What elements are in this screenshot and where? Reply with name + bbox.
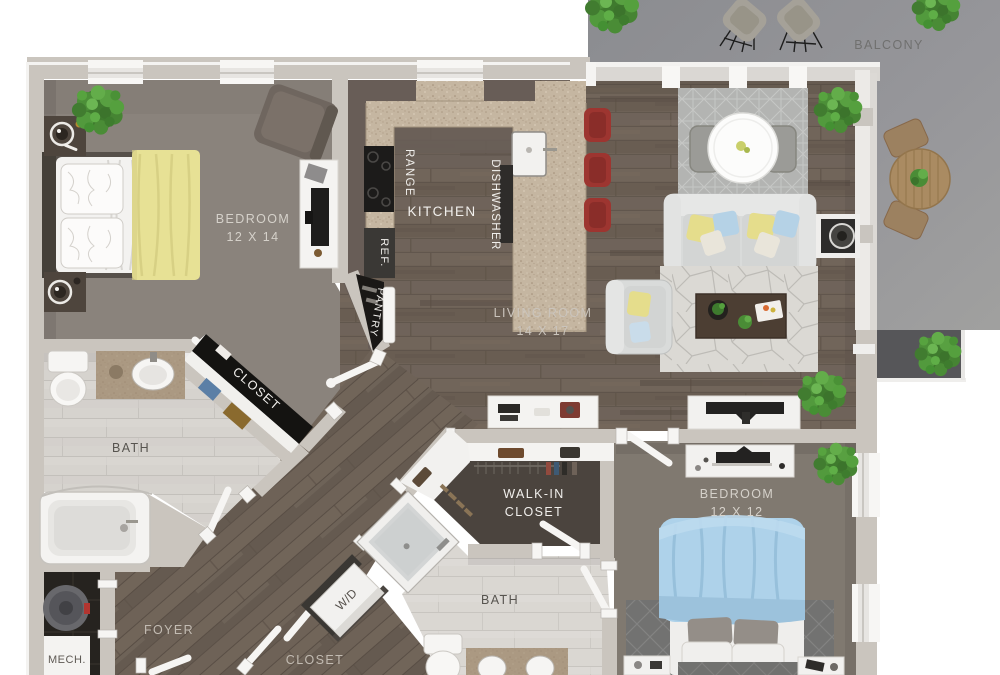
- svg-text:BEDROOM: BEDROOM: [216, 212, 290, 226]
- svg-text:12 X 12: 12 X 12: [711, 505, 764, 519]
- svg-text:14 X 17: 14 X 17: [517, 324, 570, 338]
- svg-text:KITCHEN: KITCHEN: [407, 204, 476, 219]
- svg-text:CLOSET: CLOSET: [286, 653, 344, 667]
- svg-text:BEDROOM: BEDROOM: [700, 487, 774, 501]
- svg-text:REF.: REF.: [378, 238, 390, 267]
- svg-text:FOYER: FOYER: [144, 623, 194, 637]
- svg-text:BATH: BATH: [481, 593, 519, 607]
- svg-text:BALCONY: BALCONY: [854, 38, 924, 52]
- svg-text:WALK-IN: WALK-IN: [503, 487, 564, 501]
- svg-text:LIVING ROOM: LIVING ROOM: [494, 306, 593, 320]
- svg-text:DISHWASHER: DISHWASHER: [489, 159, 501, 251]
- svg-text:MECH.: MECH.: [48, 654, 86, 666]
- svg-text:CLOSET: CLOSET: [505, 505, 563, 519]
- svg-text:12 X 14: 12 X 14: [227, 230, 280, 244]
- svg-text:BATH: BATH: [112, 441, 150, 455]
- svg-text:RANGE: RANGE: [403, 149, 415, 197]
